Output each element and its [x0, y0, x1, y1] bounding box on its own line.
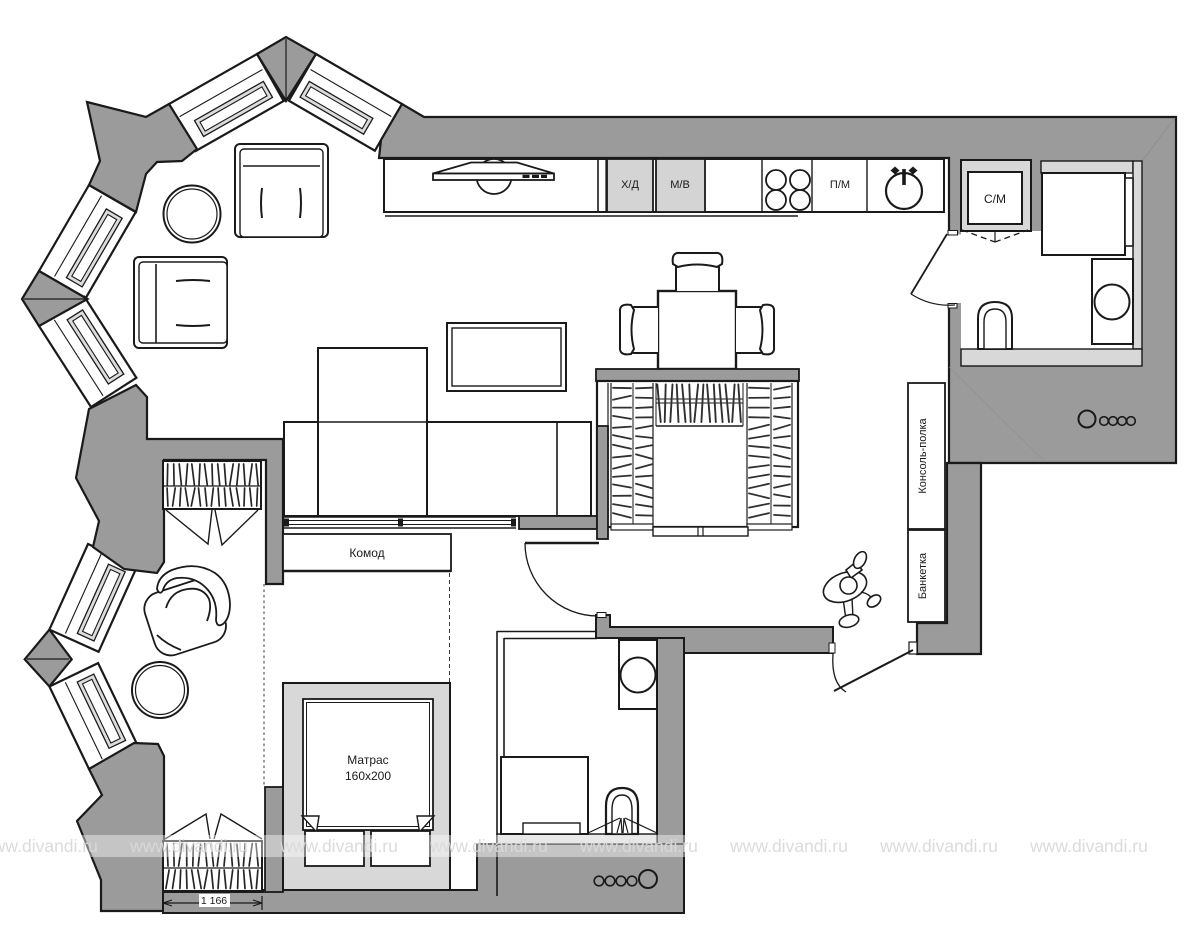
svg-text:www.divandi.ru: www.divandi.ru	[0, 836, 98, 856]
svg-text:Х/Д: Х/Д	[621, 179, 639, 191]
svg-text:160х200: 160х200	[345, 769, 391, 783]
svg-text:Комод: Комод	[349, 546, 384, 560]
svg-text:www.divandi.ru: www.divandi.ru	[1029, 836, 1148, 856]
svg-text:www.divandi.ru: www.divandi.ru	[429, 836, 548, 856]
svg-text:С/М: С/М	[984, 192, 1006, 206]
svg-text:www.divandi.ru: www.divandi.ru	[879, 836, 998, 856]
svg-text:Матрас: Матрас	[347, 753, 388, 767]
svg-text:Банкетка: Банкетка	[917, 552, 929, 599]
svg-text:Консоль-полка: Консоль-полка	[917, 417, 929, 493]
svg-text:www.divandi.ru: www.divandi.ru	[729, 836, 848, 856]
svg-text:www.divandi.ru: www.divandi.ru	[129, 836, 248, 856]
svg-text:М/В: М/В	[670, 179, 690, 191]
svg-text:www.divandi.ru: www.divandi.ru	[579, 836, 698, 856]
svg-text:www.divandi.ru: www.divandi.ru	[279, 836, 398, 856]
svg-text:П/М: П/М	[830, 179, 850, 191]
svg-text:1 166: 1 166	[201, 895, 227, 907]
